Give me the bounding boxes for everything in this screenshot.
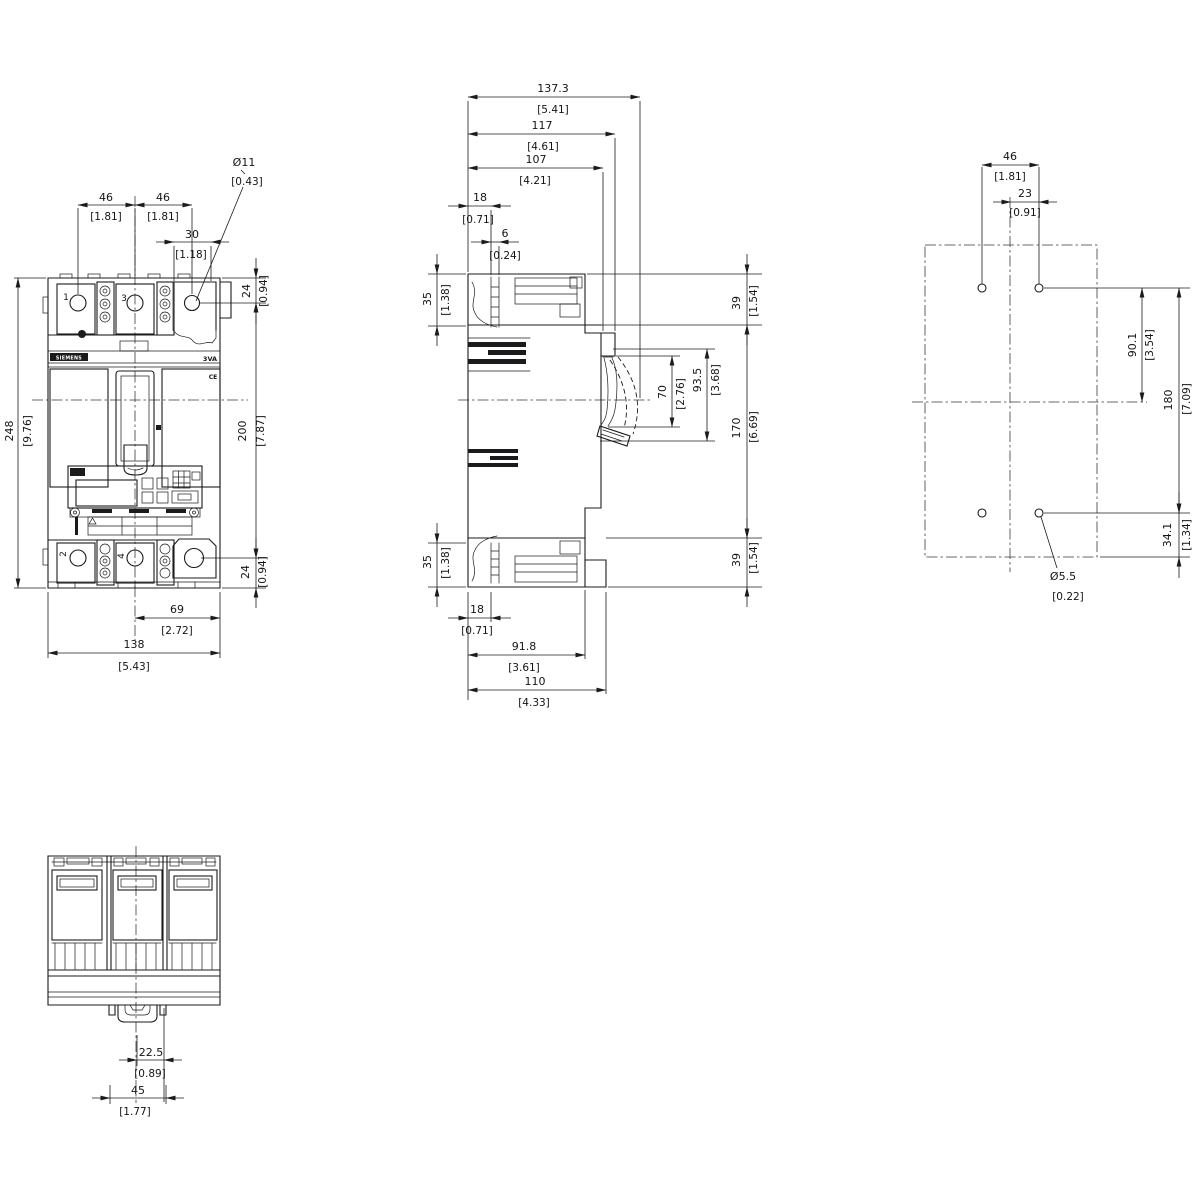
front-dim-hole-span-in: [7.87] <box>255 415 267 447</box>
front-dim-center-to-edge-mm: 69 <box>170 603 184 616</box>
side-dim-depth-max-mm: 137.3 <box>537 82 569 95</box>
front-pole-label-1: 1 <box>63 293 69 303</box>
side-dim-depth-handle-mm: 117 <box>532 119 553 132</box>
front-dim-pitch-right-in: [1.81] <box>147 211 179 223</box>
product-label: 3VA <box>203 355 217 363</box>
side-dim-top-section-mm: 39 <box>730 296 743 310</box>
side-dim-body-depth-in: [3.61] <box>508 662 540 674</box>
front-dim-width-mm: 138 <box>124 638 145 651</box>
front-pole-label-4: 4 <box>117 553 127 559</box>
side-dim-terminal-depth-bottom-mm: 35 <box>421 555 434 569</box>
side-dim-terminal-depth-top-in: [1.38] <box>440 284 452 316</box>
side-dim-base-screw-mm: 18 <box>470 603 484 616</box>
front-dim-center-to-edge-in: [2.72] <box>161 625 193 637</box>
front-dim-edge-to-hole-bottom-in: [0.94] <box>257 556 269 588</box>
side-dim-handle-window-in: [2.76] <box>675 378 687 410</box>
rear-dim-hole-offset-x-mm: 23 <box>1018 187 1032 200</box>
side-dim-depth-max-in: [5.41] <box>537 104 569 116</box>
side-dim-body-section-in: [6.69] <box>748 411 760 443</box>
rear-dim-hole-pitch-y-mm: 180 <box>1162 390 1175 411</box>
side-dim-bottom-section-in: [1.54] <box>748 542 760 574</box>
rear-dim-hole-offset-x-in: [0.91] <box>1009 207 1041 219</box>
side-dim-base-depth-mm: 110 <box>525 675 546 688</box>
bottom-dim-clip-width-mm: 45 <box>131 1084 145 1097</box>
front-dim-lug-width-mm: 30 <box>185 228 199 241</box>
front-dim-pitch-left-mm: 46 <box>99 191 113 204</box>
side-dim-terminal-depth-bottom-in: [1.38] <box>440 547 452 579</box>
side-dim-terminal-screw-in: [0.71] <box>462 214 494 226</box>
front-pole-label-3: 3 <box>121 294 127 304</box>
front-dim-edge-to-hole-bottom-mm: 24 <box>239 565 252 579</box>
front-pole-label-2: 2 <box>59 551 69 557</box>
side-dim-top-section-in: [1.54] <box>748 285 760 317</box>
side-dim-terminal-screw-mm: 18 <box>473 191 487 204</box>
side-dim-body-depth-mm: 91.8 <box>512 640 537 653</box>
bottom-dim-clip-inner-in: [0.89] <box>134 1068 166 1080</box>
rear-dim-hole-to-center-in: [3.54] <box>1144 329 1156 361</box>
rear-dim-hole-dia-mm: Ø5.5 <box>1050 570 1076 583</box>
side-dim-base-depth-in: [4.33] <box>518 697 550 709</box>
side-dim-bottom-section-mm: 39 <box>730 553 743 567</box>
front-dim-lug-width-in: [1.18] <box>175 249 207 261</box>
rear-dim-hole-dia-in: [0.22] <box>1052 591 1084 603</box>
side-dim-screw-offset-in: [0.24] <box>489 250 521 262</box>
side-dim-screw-offset-mm: 6 <box>502 227 509 240</box>
side-dim-body-section-mm: 170 <box>730 418 743 439</box>
drawing-canvas: 46 [1.81] 46 [1.81] 30 [1.18] Ø11 [0.43]… <box>0 0 1200 1200</box>
rear-dim-hole-pitch-x-mm: 46 <box>1003 150 1017 163</box>
front-dim-hole-span-mm: 200 <box>236 421 249 442</box>
side-dim-handle-zone-mm: 93.5 <box>691 368 704 393</box>
rear-dim-hole-to-bottom-in: [1.34] <box>1181 519 1193 551</box>
side-dim-base-screw-in: [0.71] <box>461 625 493 637</box>
front-dim-hole-dia-in: [0.43] <box>231 176 263 188</box>
rear-dim-hole-to-center-mm: 90.1 <box>1126 333 1139 358</box>
rear-dim-hole-pitch-x-in: [1.81] <box>994 171 1026 183</box>
side-dim-depth-face-mm: 107 <box>526 153 547 166</box>
front-dim-pitch-right-mm: 46 <box>156 191 170 204</box>
rear-dim-hole-to-bottom-mm: 34.1 <box>1161 523 1174 548</box>
front-dim-hole-dia-mm: Ø11 <box>233 156 256 169</box>
side-dim-terminal-depth-top-mm: 35 <box>421 292 434 306</box>
front-dim-edge-to-hole-top-in: [0.94] <box>258 275 270 307</box>
front-dim-height-mm: 248 <box>3 421 16 442</box>
front-dim-edge-to-hole-top-mm: 24 <box>240 284 253 298</box>
side-dim-handle-window-mm: 70 <box>656 385 669 399</box>
side-dim-depth-handle-in: [4.61] <box>527 141 559 153</box>
rear-dim-hole-pitch-y-in: [7.09] <box>1181 383 1193 415</box>
front-dim-width-in: [5.43] <box>118 661 150 673</box>
test-button <box>78 330 86 338</box>
side-dim-depth-face-in: [4.21] <box>519 175 551 187</box>
side-dim-handle-zone-in: [3.68] <box>710 364 722 396</box>
siemens-logo-text: SIEMENS <box>56 356 82 362</box>
bottom-dim-clip-inner-mm: 22.5 <box>139 1046 164 1059</box>
ce-mark: CE <box>209 374 218 381</box>
front-dim-height-in: [9.76] <box>22 415 34 447</box>
front-dim-pitch-left-in: [1.81] <box>90 211 122 223</box>
bottom-dim-clip-width-in: [1.77] <box>119 1106 151 1118</box>
technical-drawing-page: 46 [1.81] 46 [1.81] 30 [1.18] Ø11 [0.43]… <box>0 0 1200 1200</box>
